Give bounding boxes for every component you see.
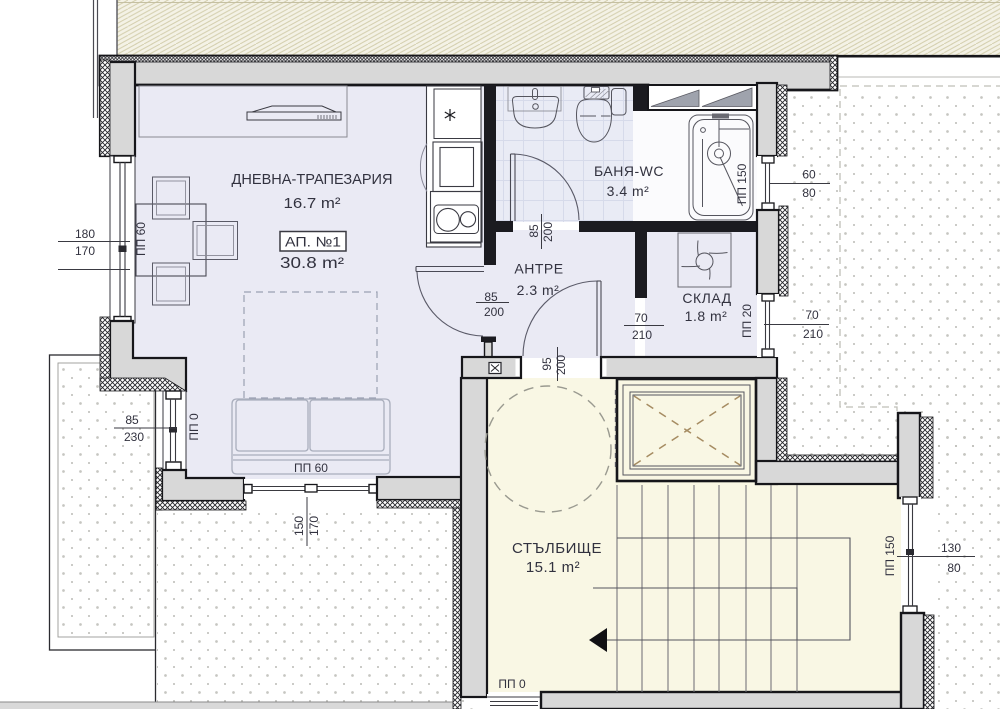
svg-text:ПП 20: ПП 20 [740, 304, 754, 338]
svg-text:130: 130 [941, 541, 961, 555]
svg-text:60: 60 [802, 168, 816, 182]
svg-text:16.7 m²: 16.7 m² [284, 195, 341, 212]
svg-text:АП. №1: АП. №1 [285, 234, 341, 250]
svg-text:210: 210 [803, 327, 823, 341]
svg-text:ПП 0: ПП 0 [498, 677, 526, 691]
svg-text:ПП 0: ПП 0 [187, 413, 201, 441]
svg-text:ПП 150: ПП 150 [735, 163, 749, 204]
svg-text:200: 200 [541, 222, 555, 242]
svg-text:ПП 60: ПП 60 [294, 461, 328, 475]
svg-text:170: 170 [307, 516, 321, 536]
svg-text:70: 70 [634, 311, 648, 325]
svg-text:2.3 m²: 2.3 m² [517, 282, 560, 298]
svg-text:150: 150 [292, 516, 306, 536]
svg-text:СТЪЛБИЩЕ: СТЪЛБИЩЕ [512, 540, 602, 557]
svg-text:ПП 150: ПП 150 [883, 535, 897, 576]
svg-text:ДНЕВНА-ТРАПЕЗАРИЯ: ДНЕВНА-ТРАПЕЗАРИЯ [232, 171, 393, 188]
svg-text:210: 210 [632, 328, 652, 342]
svg-text:95: 95 [540, 357, 554, 371]
svg-text:1.8 m²: 1.8 m² [685, 308, 728, 324]
svg-text:15.1 m²: 15.1 m² [526, 559, 580, 576]
svg-text:200: 200 [554, 355, 568, 375]
svg-text:200: 200 [484, 305, 504, 319]
svg-text:230: 230 [124, 430, 144, 444]
svg-text:АНТРЕ: АНТРЕ [514, 261, 563, 277]
svg-text:ПП 60: ПП 60 [134, 222, 148, 256]
svg-text:БАНЯ-WC: БАНЯ-WC [594, 163, 664, 179]
svg-text:30.8 m²: 30.8 m² [280, 255, 344, 272]
svg-text:СКЛАД: СКЛАД [682, 290, 731, 306]
svg-text:80: 80 [802, 186, 816, 200]
svg-text:170: 170 [75, 244, 95, 258]
svg-text:85: 85 [125, 413, 139, 427]
svg-text:70: 70 [805, 308, 819, 322]
svg-text:3.4 m²: 3.4 m² [607, 183, 650, 199]
svg-text:85: 85 [527, 224, 541, 238]
svg-text:180: 180 [75, 227, 95, 241]
svg-text:80: 80 [947, 561, 961, 575]
svg-text:85: 85 [484, 290, 498, 304]
